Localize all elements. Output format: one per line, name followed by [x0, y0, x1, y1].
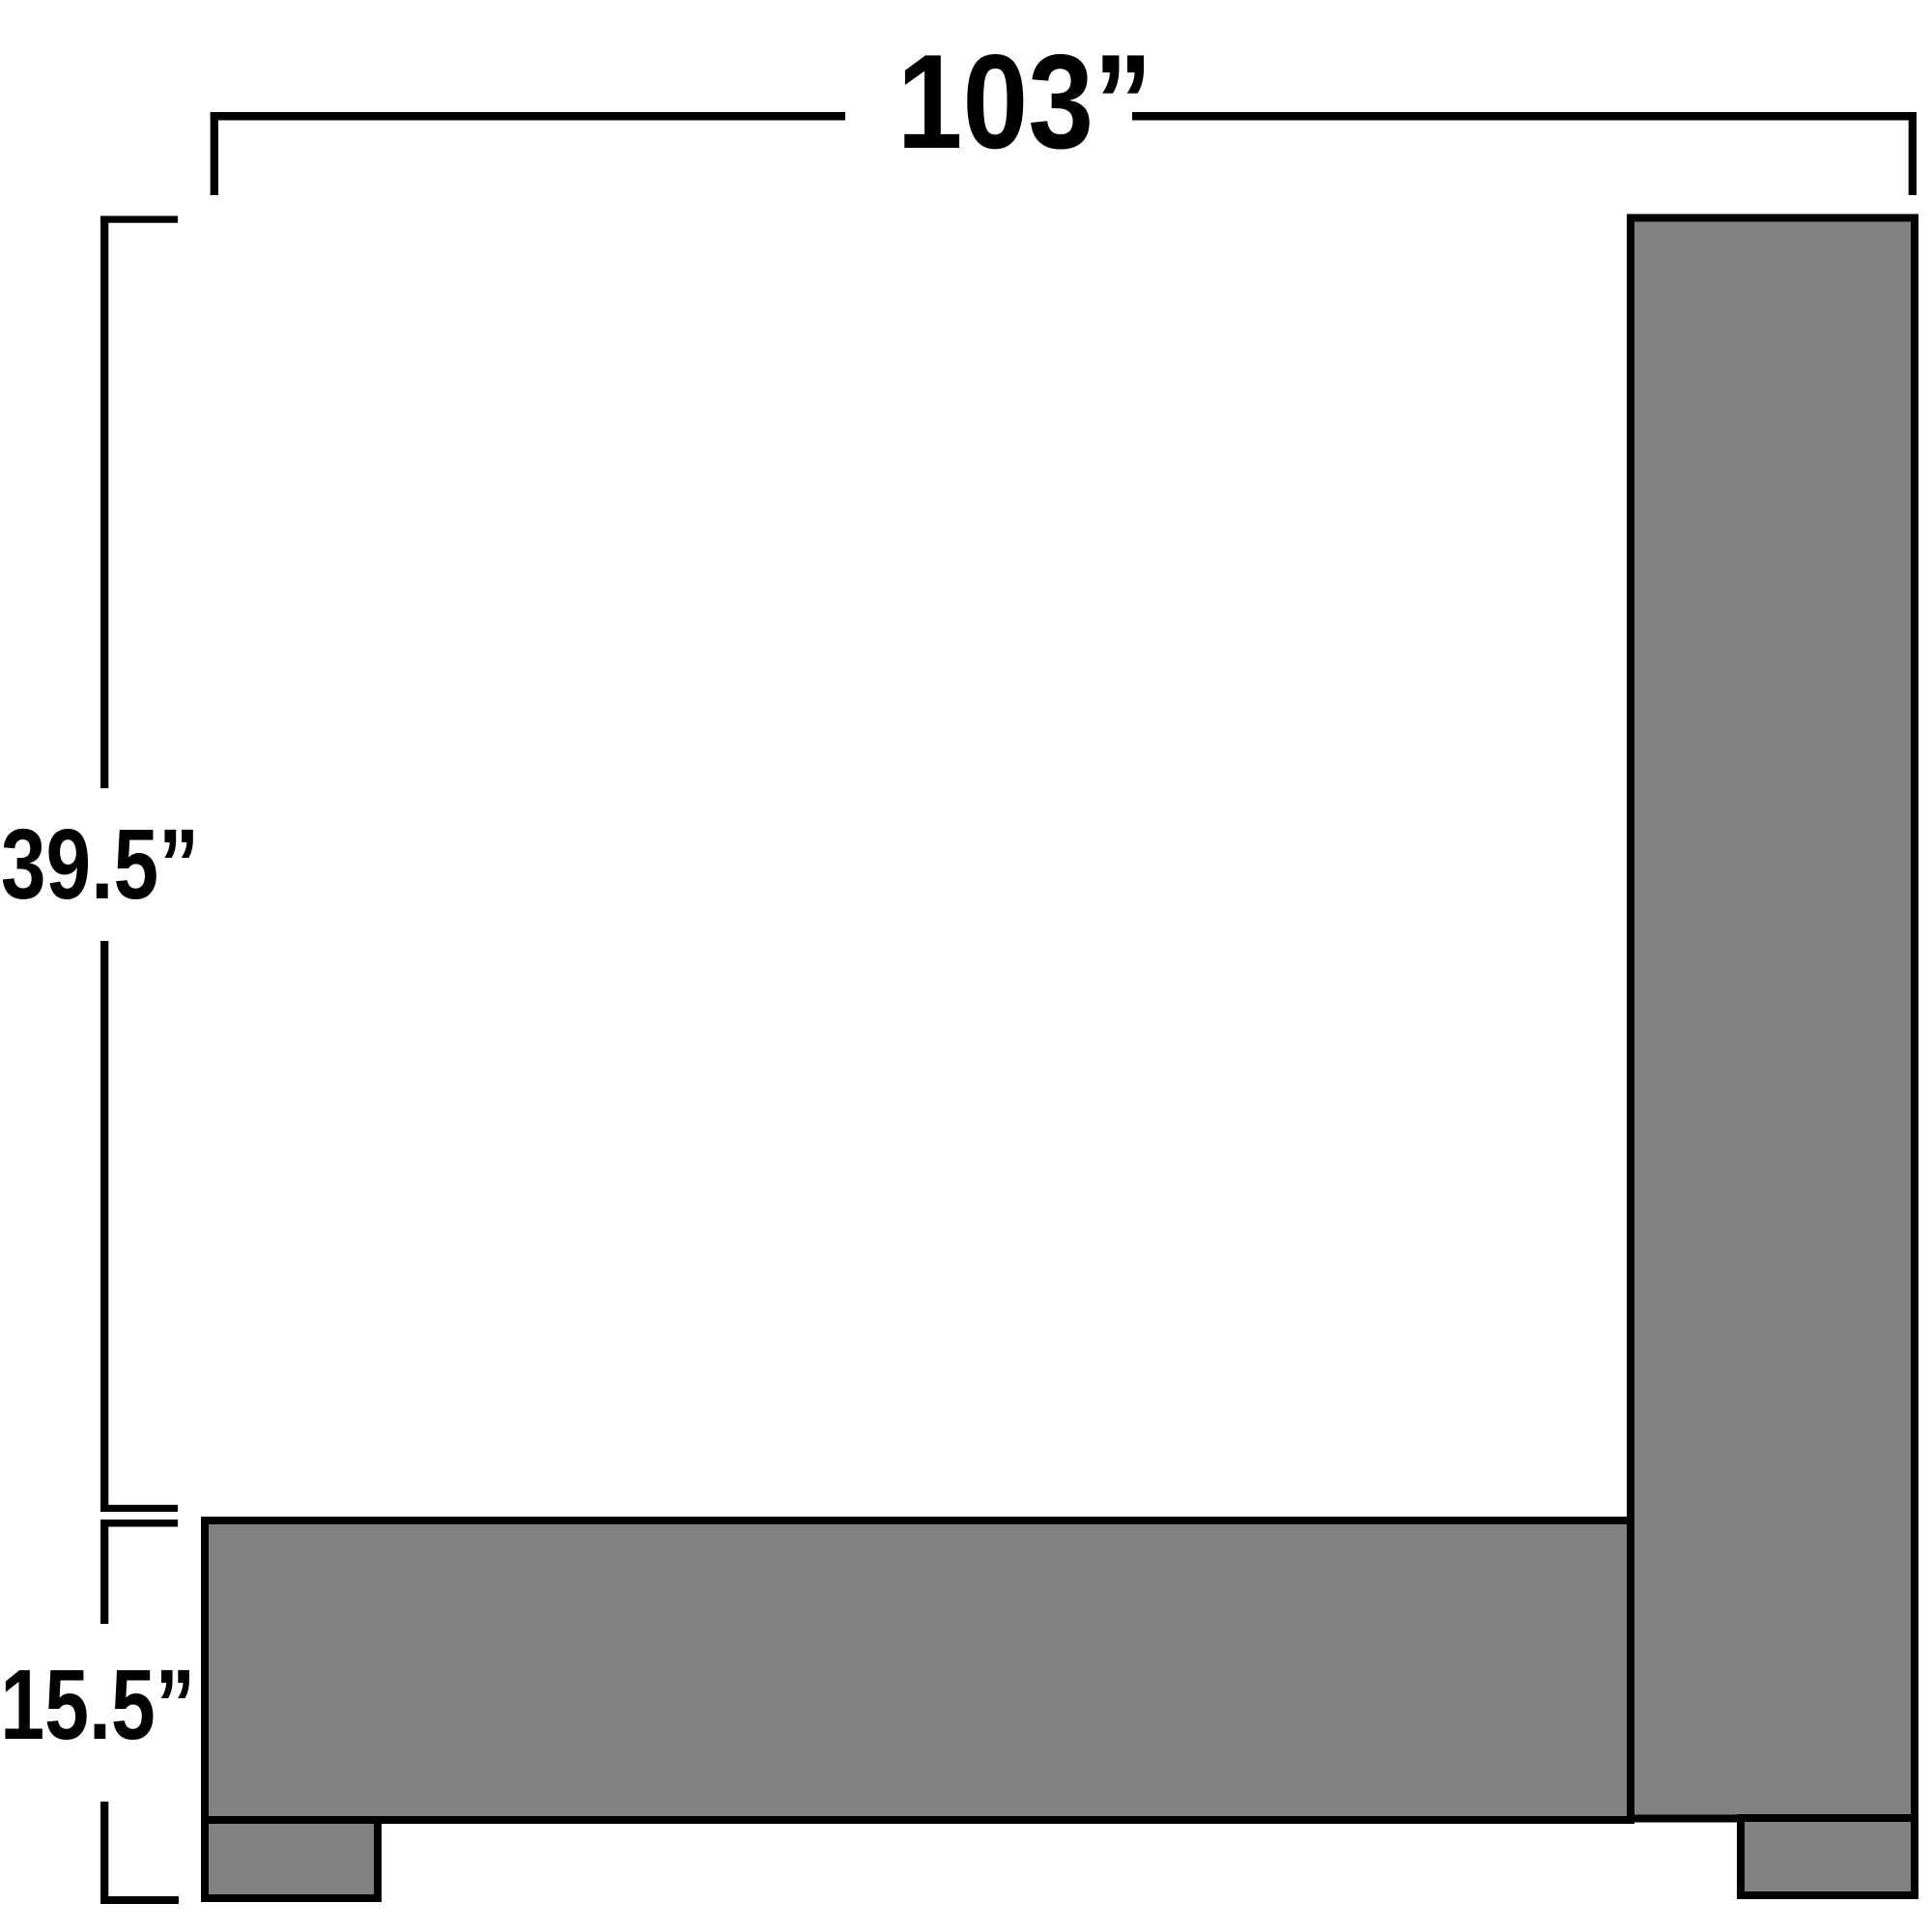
svg-text:15.5”: 15.5” [0, 1649, 195, 1760]
svg-text:39.5”: 39.5” [1, 809, 199, 920]
svg-text:103”: 103” [897, 27, 1153, 177]
